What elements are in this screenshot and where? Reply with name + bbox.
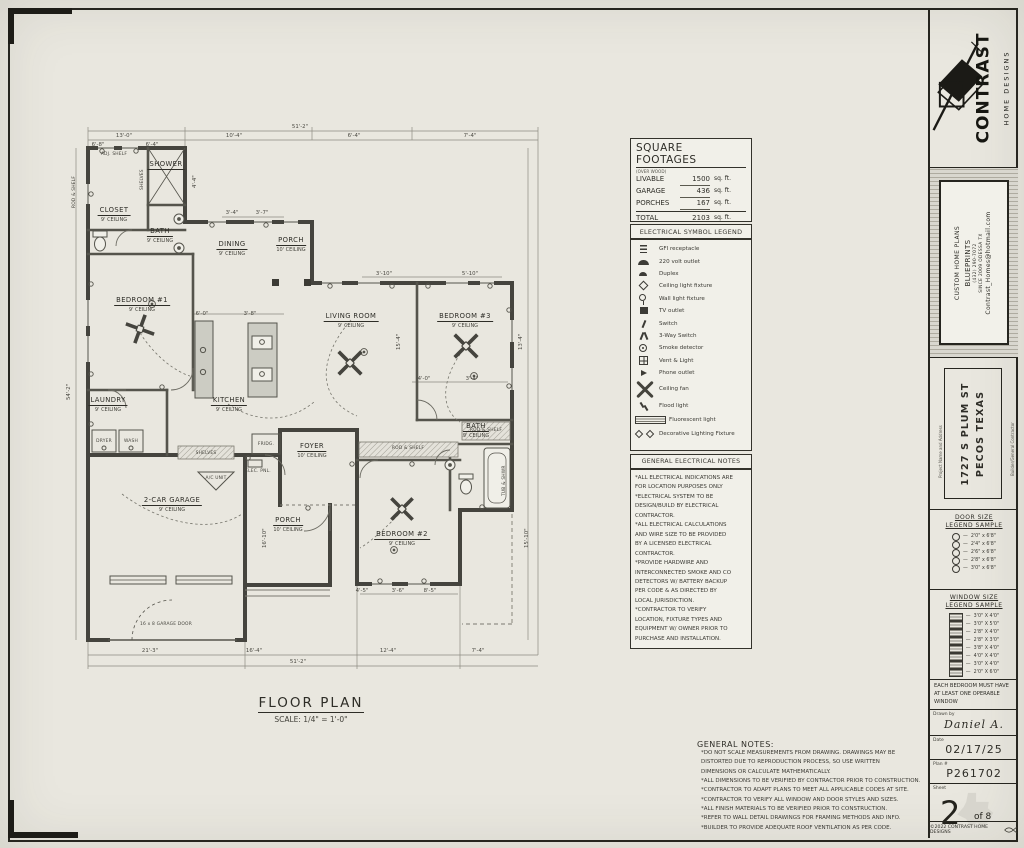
project-address: 1727 S PLUM ST PECOS TEXAS (958, 382, 988, 485)
dimension-label: 3'-10" (376, 271, 392, 277)
window-size-row: — 2'8" X 4'0" (930, 629, 1018, 637)
dimension-label: 6'-4" (146, 142, 159, 148)
door-symbol-icon (952, 557, 960, 565)
dimension-label: 10'-4" (226, 133, 242, 139)
contact-line: CUSTOM HOME PLANS (954, 211, 963, 314)
general-note-line: DISTORTED DUE TO REPRODUCTION PROCESS, S… (697, 758, 929, 767)
electrical-note-line: CONTRACTOR. (635, 512, 747, 521)
legend-item: TV outlet (633, 305, 749, 317)
wall-light-icon (633, 293, 659, 305)
window-size-row: — 3'0" X 5'0" (930, 621, 1018, 629)
ceiling-fan-icon (633, 379, 659, 399)
window-symbol-icon (949, 669, 963, 677)
general-note-line: *REFER TO WALL DETAIL DRAWINGS FOR FRAMI… (697, 814, 929, 823)
door-size-row: — 2'6" x 6'8" (930, 549, 1018, 557)
closet-shelving (178, 422, 510, 459)
electrical-legend-items: GFI receptacle 220 volt outlet Duplex Ce… (630, 239, 752, 451)
electrical-notes-box: *ALL ELECTRICAL INDICATIONS AREFOR LOCAT… (630, 469, 752, 649)
window-size-row: — 4'0" X 4'0" (930, 653, 1018, 661)
legend-item: Ceiling light fixture (633, 280, 749, 292)
drawn-by-label: Drawn by (933, 712, 955, 717)
dimension-label: 15'-10" (524, 528, 530, 548)
general-note-line: *ALL DIMENSIONS TO BE VERIFIED BY CONTRA… (697, 777, 929, 786)
door-size-row: — 2'0" x 6'8" (930, 533, 1018, 541)
room-label-bath2: BATH9' CEILING (463, 422, 489, 439)
fixture-label: FRIDG. (258, 442, 274, 447)
dimension-label: 13'-4" (518, 334, 524, 350)
window-legend-cell: WINDOW SIZE LEGEND SAMPLE — 3'0" X 4'0" … (930, 590, 1018, 680)
electrical-note-line: *ELECTRICAL SYSTEM TO BE (635, 493, 747, 502)
walls (88, 148, 512, 640)
contact-info: CUSTOM HOME PLANSBLUEPRINTS(432) 290-707… (954, 211, 994, 314)
bedroom-window-note: EACH BEDROOM MUST HAVE AT LEAST ONE OPER… (930, 680, 1018, 709)
square-footage-row: LIVABLE 1500 sq. ft. (636, 174, 746, 186)
date-value: 02/17/25 (930, 743, 1018, 756)
room-label-garage: 2-CAR GARAGE9' CEILING (142, 496, 202, 513)
electrical-note-line: *CONTRACTOR TO VERIFY (635, 606, 747, 615)
room-label-bath1: BATH9' CEILING (147, 227, 173, 244)
dimension-label: 3'-7" (256, 210, 269, 216)
dimension-label: 5'-10" (462, 271, 478, 277)
room-label-porch-entry: PORCH10' CEILING (276, 236, 306, 253)
general-notes: GENERAL NOTES: *DO NOT SCALE MEASUREMENT… (697, 740, 929, 833)
door-legend-list: — 2'0" x 6'8" — 2'4" x 6'8" — 2'6" x 6'8… (930, 533, 1018, 573)
window-symbol-icon (949, 661, 963, 669)
duplex-icon (633, 268, 659, 280)
room-label-living: LIVING ROOM9' CEILING (324, 312, 379, 329)
legend-item: GFI receptacle (633, 243, 749, 255)
floor-plan-drawing (62, 124, 637, 684)
dimension-label: 3'-8" (244, 311, 257, 317)
room-label-bedroom2: BEDROOM #29' CEILING (374, 530, 430, 547)
sheet-number-cell: Sheet 2 of 8 (930, 784, 1018, 822)
window-size-row: — 3'0" X 4'0" (930, 661, 1018, 669)
brand-name: CONTRAST (974, 32, 994, 143)
window-legend-title: WINDOW SIZE LEGEND SAMPLE (930, 594, 1018, 610)
legend-item: Fluorescent light (633, 413, 749, 427)
project-label: Project Name and Address (938, 425, 943, 478)
general-note-line: *DO NOT SCALE MEASUREMENTS FROM DRAWING.… (697, 749, 929, 758)
fixture-label: ROD & SHELF (72, 176, 77, 208)
smoke-detector-icon (633, 342, 659, 354)
bedroom-note-cell: EACH BEDROOM MUST HAVE AT LEAST ONE OPER… (930, 680, 1018, 710)
window-symbol-icon (949, 653, 963, 661)
date-cell: Date 02/17/25 (930, 736, 1018, 760)
legend-item: Switch (633, 317, 749, 329)
outlet220-icon (633, 256, 659, 268)
legend-item: Phone outlet (633, 367, 749, 379)
general-note-line: *CONTRACTOR TO ADAPT PLANS TO MEET ALL A… (697, 786, 929, 795)
sheet-corner-mark (8, 832, 78, 838)
builder-label: Builder/General Contractor (1010, 422, 1015, 476)
general-note-line: DIMENSIONS OR CALCULATE MATHEMATICALLY. (697, 768, 929, 777)
flood-light-icon (633, 400, 659, 412)
window-size-row: — 3'0" X 4'0" (930, 613, 1018, 621)
legend-item: Wall light fixture (633, 293, 749, 305)
plan-title-block: FLOOR PLAN SCALE: 1/4" = 1'-0" (246, 692, 376, 724)
square-footages-table: LIVABLE 1500 sq. ft. GARAGE 436 sq. ft. … (636, 174, 746, 223)
electrical-note-line: EQUIPMENT W/ OWNER PRIOR TO (635, 625, 747, 634)
room-label-dining: DINING9' CEILING (216, 240, 247, 257)
dimension-label: 3'-4" (226, 210, 239, 216)
title-block: CONTRAST HOME DESIGNS CUSTOM HOME PLANSB… (928, 8, 1018, 838)
brand-subname: HOME DESIGNS (1003, 50, 1011, 125)
sheet-corner-mark (8, 8, 14, 44)
dimension-label: 6'-8" (92, 142, 105, 148)
floor-plan-area: CLOSET9' CEILING SHOWER BATH9' CEILING D… (62, 124, 637, 684)
legend-item: Flood light (633, 399, 749, 413)
sheet-label: Sheet (933, 786, 946, 791)
fish-icon (1004, 826, 1018, 834)
legend-item: Smoke detector (633, 342, 749, 354)
decorative-icon (633, 428, 659, 440)
electrical-note-line: INTERCONNECTED SMOKE AND CO (635, 569, 747, 578)
window-symbol-icon (949, 637, 963, 645)
page-title: FLOOR PLAN (258, 695, 363, 713)
dimension-label: 7'-4" (472, 648, 485, 654)
fixture-label: ELEC. PNL. (245, 469, 271, 474)
electrical-note-line: LOCAL JURISDICTION. (635, 597, 747, 606)
electrical-note-line: DETECTORS W/ BATTERY BACKUP (635, 578, 747, 587)
garage-door (108, 576, 237, 640)
copyright-text: ©2022 CONTRAST HOME DESIGNS (930, 825, 1001, 835)
window-symbol-icon (949, 645, 963, 653)
dimension-label: 4'-5" (356, 588, 369, 594)
window-size-row: — 2'0" X 6'0" (930, 669, 1018, 677)
gfi-icon (633, 243, 659, 255)
dimension-label: 54'-2" (66, 384, 72, 400)
fixture-label: A/C UNIT (205, 476, 226, 481)
phone-outlet-icon (633, 367, 659, 379)
window-size-row: — 2'8" X 3'0" (930, 637, 1018, 645)
porch-columns (272, 279, 311, 286)
electrical-note-line: DESIGN/BUILD BY ELECTRICAL (635, 502, 747, 511)
room-label-closet: CLOSET9' CEILING (98, 206, 131, 223)
electrical-note-line: AND WIRE SIZE TO BE PROVIDED (635, 531, 747, 540)
ceiling-light-icon (633, 280, 659, 292)
electrical-note-line: FOR LOCATION PURPOSES ONLY (635, 483, 747, 492)
legend-item: Vent & Light (633, 355, 749, 367)
fixture-label: WASH (124, 439, 138, 444)
fixture-label: SHELVES (196, 451, 217, 456)
legend-item: 3-Way Switch (633, 330, 749, 342)
fixture-label: ROD & SHELF (392, 446, 424, 451)
dimension-label: 21'-3" (142, 648, 158, 654)
drawn-by-value: Daniel A. (930, 718, 1018, 731)
contact-cell: CUSTOM HOME PLANSBLUEPRINTS(432) 290-707… (930, 168, 1018, 358)
switch3-icon (633, 330, 659, 342)
electrical-wiring (122, 320, 466, 548)
electrical-note-line: PURCHASE AND INSTALLATION. (635, 635, 747, 644)
dimension-label: 16'-4" (246, 648, 262, 654)
legend-item: Ceiling fan (633, 379, 749, 399)
contact-line: BLUEPRINTS (963, 211, 973, 314)
electrical-legend-header: ELECTRICAL SYMBOL LEGEND (630, 224, 752, 239)
electrical-note-line: PER CODE & AS DIRECTED BY (635, 587, 747, 596)
room-label-bedroom1: BEDROOM #19' CEILING (114, 296, 170, 313)
plan-number-cell: Plan # P261702 (930, 760, 1018, 784)
legend-item: 220 volt outlet (633, 255, 749, 267)
door-size-row: — 3'0" x 6'8" (930, 565, 1018, 573)
general-note-line: *CONTRACTOR TO VERIFY ALL WINDOW AND DOO… (697, 796, 929, 805)
door-symbol-icon (952, 549, 960, 557)
fixture-label: ADJ. SHELF (101, 152, 127, 157)
square-footages-box: SQUARE FOOTAGES (OVER WOOD) LIVABLE 1500… (630, 138, 752, 222)
contact-line: Contrast_Homes@hotmail.com (985, 211, 994, 314)
electrical-note-line: LOCATION, FIXTURE TYPES AND (635, 616, 747, 625)
electrical-note-line: *PROVIDE HARDWIRE AND (635, 559, 747, 568)
door-symbol-icon (952, 565, 960, 573)
plan-scale: SCALE: 1/4" = 1'-0" (246, 715, 376, 724)
kitchen-counters (195, 321, 277, 398)
dimension-label: 4'-0" (418, 376, 431, 382)
legend-item: Duplex (633, 268, 749, 280)
plan-number-value: P261702 (930, 767, 1018, 780)
square-footage-row: PORCHES 167 sq. ft. (636, 198, 746, 210)
window-symbol-icon (949, 629, 963, 637)
room-label-foyer: FOYER10' CEILING (297, 442, 326, 459)
window-symbol-icon (949, 621, 963, 629)
electrical-note-line: *ALL ELECTRICAL CALCULATIONS (635, 521, 747, 530)
dimension-label: 3'-6" (392, 588, 405, 594)
vent-light-icon (633, 355, 659, 367)
general-note-line: *ALL FINISH MATERIALS TO BE VERIFIED PRI… (697, 805, 929, 814)
appliances (92, 430, 280, 490)
legend-item: Decorative Lighting Fixture (633, 427, 749, 441)
dimension-label: 4'-4" (192, 175, 198, 188)
dimension-lines (76, 127, 538, 669)
dimension-label: 7'-4" (464, 133, 477, 139)
tv-outlet-icon (633, 305, 659, 317)
project-address-cell: Project Name and Address 1727 S PLUM ST … (930, 358, 1018, 510)
general-note-line: *BUILDER TO PROVIDE ADEQUATE ROOF VENTIL… (697, 824, 929, 833)
fixture-label: SHELVES (140, 169, 145, 190)
drawn-by-cell: Drawn by Daniel A. (930, 710, 1018, 736)
dimension-label: 51'-2" (292, 124, 308, 130)
square-footage-row: GARAGE 436 sq. ft. (636, 186, 746, 198)
switch-icon (633, 318, 659, 330)
fixture-label: TUB & SHWR (502, 465, 507, 496)
door-legend-title: DOOR SIZE LEGEND SAMPLE (930, 514, 1018, 530)
room-label-laundry: LAUNDRY9' CEILING (88, 396, 127, 413)
room-label-shower: SHOWER (148, 160, 185, 170)
general-notes-title: GENERAL NOTES: (697, 740, 929, 749)
window-symbol-icon (949, 613, 963, 621)
electrical-note-line: *ALL ELECTRICAL INDICATIONS ARE (635, 474, 747, 483)
electrical-note-line: BY A LICENSED ELECTRICAL (635, 540, 747, 549)
dimension-label: 12'-4" (380, 648, 396, 654)
dimension-label: 8'-5" (424, 588, 437, 594)
fluorescent-icon (633, 414, 669, 426)
room-label-kitchen: KITCHEN9' CEILING (211, 396, 247, 413)
room-label-bedroom3: BEDROOM #39' CEILING (437, 312, 493, 329)
dimension-label: 13'-0" (116, 133, 132, 139)
dimension-label: 6'-4" (348, 133, 361, 139)
electrical-note-line: CONTRACTOR. (635, 550, 747, 559)
square-footage-row: TOTAL 2103 sq. ft. (636, 211, 746, 224)
door-symbol-icon (952, 541, 960, 549)
door-legend-cell: DOOR SIZE LEGEND SAMPLE — 2'0" x 6'8" — … (930, 510, 1018, 590)
room-label-porch-front: PORCH10' CEILING (273, 516, 303, 533)
blueprint-sheet: CLOSET9' CEILING SHOWER BATH9' CEILING D… (0, 0, 1024, 848)
dimension-label: 6'-0" (196, 311, 209, 317)
window-size-row: — 3'8" X 4'0" (930, 645, 1018, 653)
fixture-label: 16 x 8 GARAGE DOOR (140, 622, 192, 627)
door-size-row: — 2'4" x 6'8" (930, 541, 1018, 549)
dimension-label: 16'-10" (262, 528, 268, 548)
dimension-label: 51'-2" (290, 659, 306, 665)
brand-cell: CONTRAST HOME DESIGNS (930, 8, 1018, 168)
copyright-row: ©2022 CONTRAST HOME DESIGNS (930, 821, 1018, 838)
dimension-label: 3'-4" (466, 376, 479, 382)
door-size-row: — 2'8" x 6'8" (930, 557, 1018, 565)
electrical-notes-header: GENERAL ELECTRICAL NOTES (630, 454, 752, 469)
fixture-label: DRYER (96, 439, 112, 444)
window-legend-list: — 3'0" X 4'0" — 3'0" X 5'0" — 2'8" X 4'0… (930, 613, 1018, 677)
dimension-label: 15'-4" (396, 334, 402, 350)
sheet-corner-mark (8, 8, 72, 14)
square-footages-title: SQUARE FOOTAGES (636, 142, 746, 168)
door-symbol-icon (952, 533, 960, 541)
